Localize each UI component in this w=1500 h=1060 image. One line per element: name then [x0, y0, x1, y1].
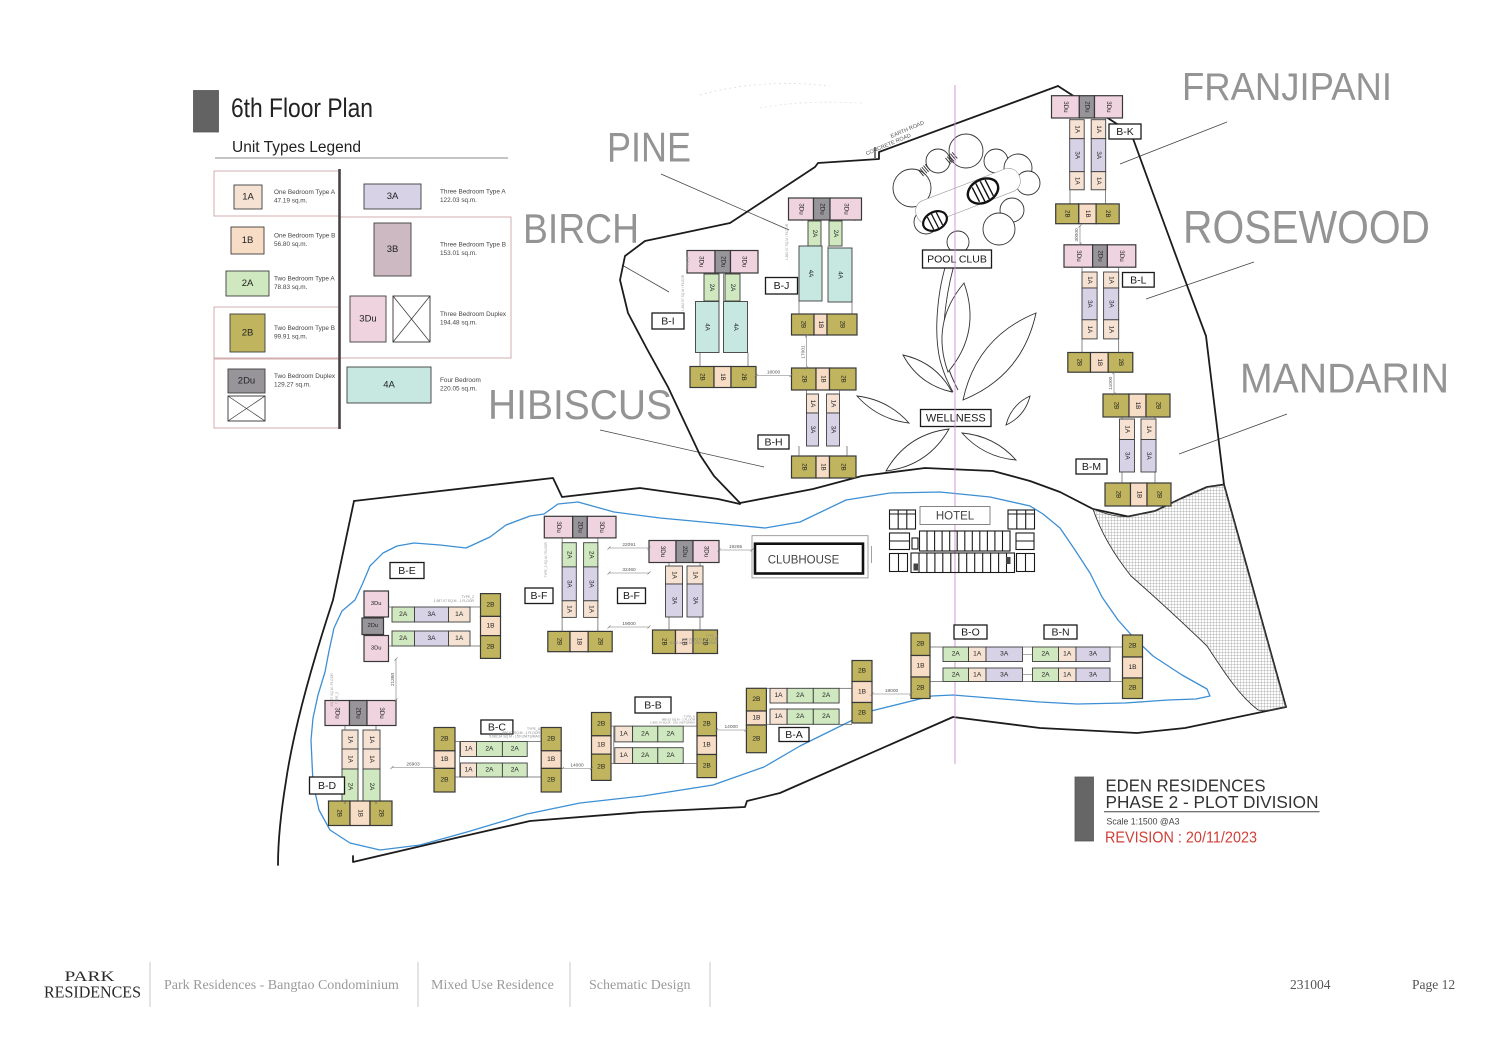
svg-text:2B: 2B [800, 375, 807, 383]
svg-text:1B: 1B [819, 375, 826, 383]
svg-text:1A: 1A [1124, 425, 1131, 433]
svg-text:2A: 2A [485, 767, 494, 774]
svg-text:3A: 3A [387, 191, 399, 202]
svg-text:2Du: 2Du [818, 203, 825, 215]
svg-text:32460: 32460 [622, 567, 636, 573]
svg-text:Scale 1:1500 @A3: Scale 1:1500 @A3 [1107, 817, 1180, 828]
svg-text:2B: 2B [242, 328, 254, 339]
svg-text:1,987.07 SQ.M - 1 FLOOR: 1,987.07 SQ.M - 1 FLOOR [434, 599, 475, 603]
svg-text:3A: 3A [1145, 452, 1152, 460]
svg-text:1A: 1A [455, 611, 464, 618]
svg-text:2A: 2A [822, 692, 831, 699]
svg-text:22091: 22091 [622, 542, 636, 548]
svg-text:2A: 2A [796, 692, 805, 699]
svg-text:3Du: 3Du [598, 521, 605, 533]
svg-text:2B: 2B [800, 463, 807, 471]
svg-text:14000: 14000 [725, 724, 739, 730]
svg-text:14000: 14000 [570, 762, 584, 768]
svg-text:6th Floor Plan: 6th Floor Plan [231, 93, 373, 123]
svg-text:3A: 3A [809, 426, 816, 434]
svg-text:220.05 sq.m.: 220.05 sq.m. [440, 386, 477, 393]
svg-text:2Du: 2Du [719, 256, 726, 268]
svg-text:TYPE_2: TYPE_2 [686, 257, 690, 269]
svg-text:2A: 2A [566, 551, 573, 559]
svg-text:2Du: 2Du [577, 521, 584, 533]
svg-text:1B: 1B [242, 235, 254, 246]
svg-text:2A: 2A [399, 635, 408, 642]
svg-text:3Du: 3Du [1075, 250, 1082, 262]
svg-text:B-M: B-M [1082, 461, 1101, 473]
svg-text:2B: 2B [752, 696, 761, 703]
svg-text:17001: 17001 [800, 345, 806, 359]
svg-text:1A: 1A [1145, 425, 1152, 433]
svg-text:1A: 1A [774, 692, 783, 699]
svg-text:2B: 2B [839, 463, 846, 471]
svg-text:2A: 2A [368, 783, 375, 791]
svg-text:1B: 1B [819, 463, 826, 471]
svg-text:1A: 1A [692, 571, 699, 579]
svg-text:1B: 1B [1128, 664, 1137, 671]
svg-text:2A: 2A [666, 752, 675, 759]
svg-text:Four Bedroom: Four Bedroom [440, 377, 481, 384]
svg-text:2Du: 2Du [1097, 250, 1104, 262]
svg-text:99.91 sq.m.: 99.91 sq.m. [274, 334, 308, 341]
svg-text:3A: 3A [1124, 452, 1131, 460]
svg-text:1A: 1A [1086, 276, 1093, 284]
svg-text:2B: 2B [858, 709, 867, 716]
svg-text:26903: 26903 [406, 761, 420, 767]
svg-text:3A: 3A [1074, 151, 1081, 159]
svg-text:1A: 1A [671, 571, 678, 579]
svg-text:991.97 SQ.M / FLOOR: 991.97 SQ.M / FLOOR [330, 673, 334, 707]
svg-text:1B: 1B [486, 623, 495, 630]
svg-text:Three Bedroom Duplex: Three Bedroom Duplex [440, 311, 507, 318]
svg-text:3Du: 3Du [359, 314, 376, 325]
svg-text:B-A: B-A [785, 729, 803, 741]
svg-text:1A: 1A [1086, 326, 1093, 334]
svg-text:2B: 2B [440, 736, 449, 743]
svg-text:194.48 sq.m.: 194.48 sq.m. [440, 320, 477, 327]
svg-text:1A: 1A [347, 755, 354, 763]
svg-text:CLUBHOUSE: CLUBHOUSE [768, 555, 840, 567]
svg-text:Two Bedroom Duplex: Two Bedroom Duplex [274, 373, 336, 380]
svg-text:2B: 2B [703, 763, 712, 770]
svg-text:RESIDENCES: RESIDENCES [44, 983, 141, 1002]
svg-text:3Du: 3Du [698, 256, 705, 268]
svg-text:1A: 1A [464, 767, 473, 774]
svg-text:56.80 sq.m.: 56.80 sq.m. [274, 241, 308, 248]
svg-text:2B: 2B [916, 641, 925, 648]
svg-text:2Du: 2Du [355, 707, 362, 719]
svg-text:B-J: B-J [774, 280, 790, 292]
svg-text:2B: 2B [752, 735, 761, 742]
svg-text:3Du: 3Du [842, 203, 849, 215]
svg-text:3A: 3A [1095, 151, 1102, 159]
svg-text:2A: 2A [242, 278, 254, 289]
svg-text:3A: 3A [566, 580, 573, 588]
svg-text:1A: 1A [566, 605, 573, 613]
svg-text:1A: 1A [587, 605, 594, 613]
svg-text:One Bedroom Type A: One Bedroom Type A [274, 189, 336, 196]
svg-text:TYPE_2 SQ.M / FLOOR: TYPE_2 SQ.M / FLOOR [544, 542, 548, 578]
svg-text:2A: 2A [832, 230, 839, 238]
svg-text:78.83 sq.m.: 78.83 sq.m. [274, 284, 308, 291]
svg-text:B-K: B-K [1116, 126, 1134, 138]
svg-text:1B: 1B [858, 689, 867, 696]
svg-text:2A: 2A [666, 731, 675, 738]
svg-text:2B: 2B [1128, 643, 1137, 650]
svg-text:2B: 2B [916, 684, 925, 691]
svg-text:2Du: 2Du [367, 623, 378, 629]
svg-text:3Du: 3Du [703, 546, 710, 558]
svg-text:B-D: B-D [318, 780, 337, 792]
svg-text:2A: 2A [347, 783, 354, 791]
svg-text:ROSEWOOD: ROSEWOOD [1183, 201, 1430, 253]
svg-text:2A: 2A [399, 611, 408, 618]
svg-text:Three Bedroom Type A: Three Bedroom Type A [440, 189, 506, 196]
svg-text:HOTEL: HOTEL [936, 511, 975, 523]
svg-text:153.01 sq.m.: 153.01 sq.m. [440, 250, 477, 257]
svg-text:231004: 231004 [1290, 977, 1331, 992]
svg-text:1A: 1A [455, 635, 464, 642]
svg-text:2B: 2B [486, 602, 495, 609]
svg-text:2A: 2A [708, 284, 715, 292]
svg-text:3A: 3A [427, 611, 436, 618]
svg-text:122.03 sq.m.: 122.03 sq.m. [440, 197, 477, 204]
svg-text:1B: 1B [752, 715, 761, 722]
svg-text:2B: 2B [555, 638, 562, 646]
svg-text:1A: 1A [1095, 125, 1102, 133]
svg-text:1A: 1A [464, 746, 473, 753]
svg-text:3B: 3B [387, 244, 399, 255]
svg-text:3A: 3A [1000, 671, 1009, 678]
svg-text:4A: 4A [704, 323, 711, 331]
svg-text:B-B: B-B [644, 700, 662, 712]
svg-text:POOL CLUB: POOL CLUB [927, 254, 987, 266]
svg-text:Mixed Use Residence: Mixed Use Residence [431, 978, 554, 993]
svg-text:HIBISCUS: HIBISCUS [488, 381, 672, 428]
svg-text:Schematic Design: Schematic Design [589, 978, 690, 993]
svg-text:Two Bedroom Type B: Two Bedroom Type B [274, 325, 335, 332]
svg-text:2A: 2A [729, 284, 736, 292]
svg-text:B-I: B-I [661, 316, 674, 328]
svg-text:1,982.34 SQ.M - 100 UNITS/MAX: 1,982.34 SQ.M - 100 UNITS/MAX [650, 721, 695, 725]
svg-text:1B: 1B [440, 756, 449, 763]
svg-text:2B: 2B [703, 721, 712, 728]
svg-text:B-E: B-E [398, 565, 416, 577]
svg-text:2A: 2A [1041, 651, 1050, 658]
svg-text:B-O: B-O [961, 627, 980, 639]
svg-text:1B: 1B [719, 373, 726, 381]
svg-text:B-F: B-F [623, 590, 640, 602]
svg-text:5,982.34 SQ.M - 100 UNITS/MAX: 5,982.34 SQ.M - 100 UNITS/MAX [670, 641, 719, 645]
svg-text:1A: 1A [1095, 177, 1102, 185]
svg-text:2A: 2A [511, 767, 520, 774]
svg-text:3Du: 3Du [334, 707, 341, 719]
svg-text:2Du: 2Du [681, 546, 688, 558]
svg-text:B-F: B-F [531, 590, 548, 602]
svg-text:1B: 1B [597, 741, 606, 748]
svg-text:B-N: B-N [1051, 627, 1069, 639]
svg-text:3Du: 3Du [378, 707, 385, 719]
svg-text:2A: 2A [587, 551, 594, 559]
svg-text:2B: 2B [597, 764, 606, 771]
svg-text:1A: 1A [1063, 651, 1072, 658]
svg-text:1A: 1A [620, 752, 629, 759]
svg-text:2A: 2A [952, 651, 961, 658]
svg-text:5,982.34 SQ.M - 150 UNITS/MAX: 5,982.34 SQ.M - 150 UNITS/MAX [489, 735, 541, 739]
svg-text:FRANJIPANI: FRANJIPANI [1182, 66, 1392, 109]
svg-text:4A: 4A [383, 380, 395, 391]
svg-text:1,862.07 SQ.M / FLOOR: 1,862.07 SQ.M / FLOOR [681, 274, 685, 311]
svg-text:1B: 1B [1096, 359, 1103, 367]
svg-text:18000: 18000 [767, 369, 781, 375]
svg-text:3Du: 3Du [371, 601, 382, 607]
svg-text:2B: 2B [1064, 210, 1071, 218]
svg-text:2B: 2B [839, 375, 846, 383]
svg-text:3A: 3A [587, 580, 594, 588]
svg-text:2B: 2B [1156, 491, 1163, 499]
svg-text:4A: 4A [732, 323, 739, 331]
svg-text:2B: 2B [858, 668, 867, 675]
svg-text:11000: 11000 [1108, 376, 1114, 389]
svg-text:2Du: 2Du [238, 376, 255, 387]
svg-text:2B: 2B [1155, 402, 1162, 410]
svg-text:1A: 1A [1063, 671, 1072, 678]
svg-text:3A: 3A [1089, 671, 1098, 678]
svg-text:1A: 1A [973, 671, 982, 678]
svg-text:2A: 2A [641, 731, 650, 738]
svg-text:3A: 3A [427, 635, 436, 642]
svg-text:1,862.07 SQ.M / FLOOR: 1,862.07 SQ.M / FLOOR [785, 223, 789, 260]
svg-text:2B: 2B [486, 644, 495, 651]
svg-text:2B: 2B [1076, 359, 1083, 367]
svg-text:WELLNESS: WELLNESS [926, 413, 986, 425]
svg-text:3A: 3A [1086, 300, 1093, 308]
svg-text:2B: 2B [699, 373, 706, 381]
svg-text:2A: 2A [811, 230, 818, 238]
svg-text:2Du: 2Du [1083, 101, 1090, 113]
svg-text:1B: 1B [357, 809, 364, 817]
svg-text:1B: 1B [1134, 402, 1141, 410]
svg-text:3Du: 3Du [555, 521, 562, 533]
svg-text:2B: 2B [547, 736, 556, 743]
svg-text:B-L: B-L [1130, 274, 1147, 286]
svg-text:2A: 2A [1041, 671, 1050, 678]
svg-text:129.27 sq.m.: 129.27 sq.m. [274, 382, 311, 389]
svg-text:TYPE_2: TYPE_2 [335, 692, 339, 704]
svg-text:2B: 2B [740, 373, 747, 381]
svg-text:Three Bedroom Type B: Three Bedroom Type B [440, 242, 506, 249]
svg-text:2B: 2B [1128, 685, 1137, 692]
svg-text:Unit Types Legend: Unit Types Legend [232, 139, 361, 156]
svg-text:Two Bedroom Type A: Two Bedroom Type A [274, 276, 335, 283]
svg-text:2B: 2B [547, 777, 556, 784]
svg-text:1A: 1A [973, 651, 982, 658]
svg-text:47.19 sq.m.: 47.19 sq.m. [274, 198, 308, 205]
svg-text:2A: 2A [822, 713, 831, 720]
svg-text:1A: 1A [347, 736, 354, 744]
svg-text:19000: 19000 [622, 621, 636, 627]
svg-text:REVISION : 20/11/2023: REVISION : 20/11/2023 [1105, 830, 1257, 847]
svg-text:2B: 2B [336, 809, 343, 817]
svg-text:PINE: PINE [607, 124, 691, 171]
svg-text:3Du: 3Du [1118, 250, 1125, 262]
svg-text:Park Residences - Bangtao Cond: Park Residences - Bangtao Condominium [164, 978, 399, 993]
svg-text:19265: 19265 [729, 544, 743, 550]
svg-text:1A: 1A [830, 400, 837, 408]
svg-text:1B: 1B [703, 742, 712, 749]
svg-text:1A: 1A [1108, 326, 1115, 334]
svg-text:2A: 2A [485, 746, 494, 753]
svg-text:2A: 2A [511, 746, 520, 753]
svg-text:4A: 4A [807, 270, 814, 278]
svg-text:Page 12: Page 12 [1412, 977, 1455, 992]
svg-text:3A: 3A [1089, 651, 1098, 658]
svg-text:2B: 2B [1117, 359, 1124, 367]
svg-text:One Bedroom Type B: One Bedroom Type B [274, 233, 335, 240]
svg-text:3Du: 3Du [741, 256, 748, 268]
svg-text:3Du: 3Du [798, 203, 805, 215]
svg-text:3Du: 3Du [371, 646, 382, 652]
svg-text:21380: 21380 [390, 673, 396, 687]
svg-text:30000: 30000 [1074, 228, 1080, 242]
svg-text:PHASE 2 - PLOT DIVISION: PHASE 2 - PLOT DIVISION [1106, 792, 1319, 812]
svg-text:18000: 18000 [885, 688, 899, 694]
svg-text:BIRCH: BIRCH [523, 205, 639, 252]
svg-text:1A: 1A [368, 755, 375, 763]
svg-text:2B: 2B [597, 638, 604, 646]
svg-text:1A: 1A [809, 400, 816, 408]
svg-text:1B: 1B [817, 321, 824, 329]
svg-text:B-H: B-H [764, 437, 782, 449]
svg-text:3A: 3A [830, 426, 837, 434]
svg-text:1B: 1B [1084, 210, 1091, 218]
svg-text:2A: 2A [641, 752, 650, 759]
svg-text:1B: 1B [1135, 491, 1142, 499]
svg-text:1A: 1A [1074, 177, 1081, 185]
svg-text:3Du: 3Du [1062, 101, 1069, 113]
svg-text:2B: 2B [1114, 491, 1121, 499]
svg-text:1A: 1A [368, 736, 375, 744]
svg-text:2B: 2B [661, 638, 668, 646]
svg-text:2B: 2B [440, 777, 449, 784]
svg-text:2B: 2B [839, 321, 846, 329]
svg-text:2A: 2A [952, 671, 961, 678]
svg-text:3A: 3A [1000, 651, 1009, 658]
svg-text:4A: 4A [837, 271, 844, 279]
svg-text:2B: 2B [1113, 402, 1120, 410]
svg-text:1A: 1A [242, 192, 254, 203]
svg-text:3A: 3A [1108, 300, 1115, 308]
svg-text:MANDARIN: MANDARIN [1240, 355, 1449, 402]
svg-text:3Du: 3Du [1105, 101, 1112, 113]
svg-text:2B: 2B [597, 721, 606, 728]
svg-text:1A: 1A [1108, 276, 1115, 284]
svg-text:1A: 1A [774, 713, 783, 720]
svg-text:3A: 3A [671, 597, 678, 605]
svg-text:3A: 3A [692, 597, 699, 605]
svg-text:1A: 1A [620, 731, 629, 738]
svg-text:2B: 2B [378, 809, 385, 817]
svg-text:1B: 1B [576, 638, 583, 646]
svg-text:2B: 2B [1104, 210, 1111, 218]
svg-text:1B: 1B [916, 663, 925, 670]
svg-text:3Du: 3Du [659, 546, 666, 558]
svg-text:2B: 2B [799, 321, 806, 329]
svg-text:1A: 1A [1074, 125, 1081, 133]
svg-text:2A: 2A [796, 713, 805, 720]
svg-text:1B: 1B [547, 756, 556, 763]
